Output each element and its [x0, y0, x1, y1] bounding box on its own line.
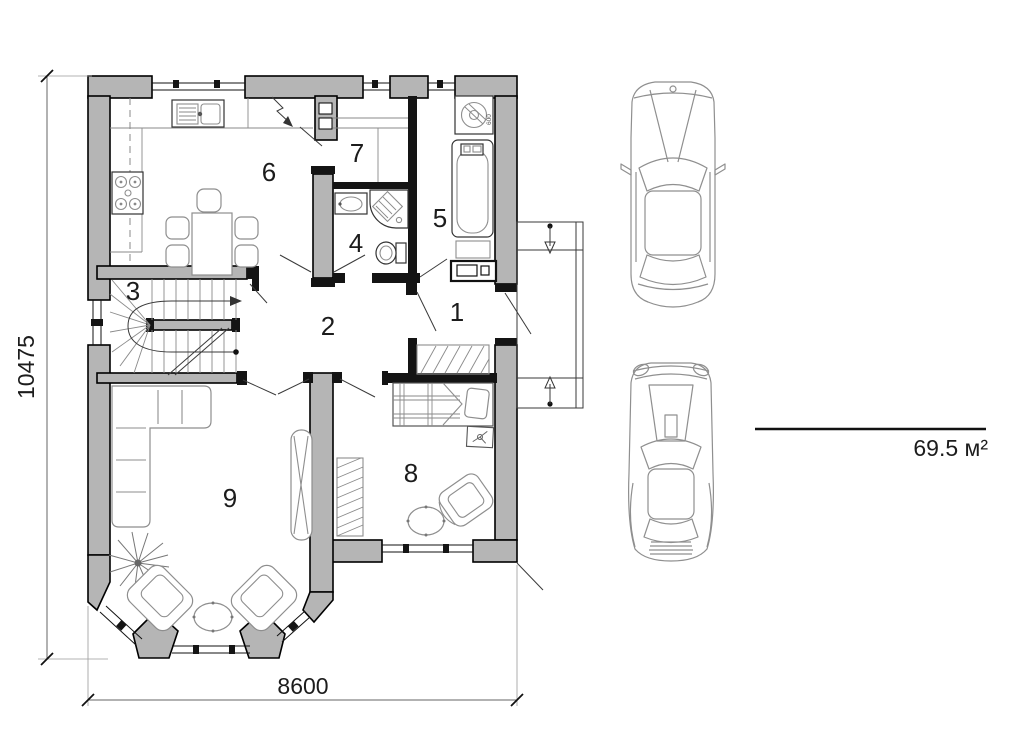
living-room [109, 386, 312, 635]
room-label-4: 4 [349, 228, 363, 258]
chair [235, 217, 258, 239]
toilet [376, 242, 406, 264]
room-label-6: 6 [262, 157, 276, 187]
rug [456, 241, 490, 258]
closet-shelves [333, 118, 408, 182]
floor-plan-canvas: 600 [0, 0, 1024, 739]
room-label-2: 2 [321, 311, 335, 341]
kitchen-sink [172, 100, 224, 127]
vehicles [621, 82, 725, 561]
kitchen [110, 97, 313, 275]
pillow [464, 388, 489, 419]
dining-table [192, 213, 232, 275]
oval-table [407, 506, 446, 537]
window [172, 645, 250, 654]
chair [166, 245, 189, 267]
tall-cabinet [291, 430, 312, 540]
dining-table-set [166, 189, 258, 275]
area-callout: 69.5 м² [755, 429, 988, 461]
room-label-7: 7 [350, 138, 364, 168]
entrance-porch [517, 222, 583, 408]
chair [166, 217, 189, 239]
bathtub [452, 140, 493, 237]
room-label-3: 3 [126, 276, 140, 306]
window [152, 80, 245, 90]
chair [235, 245, 258, 267]
doormat [417, 345, 489, 374]
bathroom [335, 190, 408, 264]
vertical-dimension-label: 10475 [13, 335, 39, 399]
window [91, 300, 103, 345]
room-label-5: 5 [433, 203, 447, 233]
room-label-8: 8 [404, 458, 418, 488]
stove [112, 172, 143, 214]
coffee-table [193, 602, 234, 633]
bay-pier [303, 592, 333, 622]
interior-walls [97, 96, 497, 385]
room-label-9: 9 [223, 483, 237, 513]
chair [197, 189, 221, 212]
horizontal-dimension-label: 8600 [277, 673, 328, 699]
window [363, 80, 390, 90]
utility-room: 600 [451, 96, 496, 281]
window [382, 544, 473, 553]
sedan-top-view-icon [621, 82, 725, 307]
bed [393, 383, 493, 426]
armchair [227, 561, 301, 635]
shower-cabin [370, 190, 408, 228]
bay-pier [88, 555, 110, 610]
bedside-table [466, 426, 493, 447]
shoe-cabinet [451, 261, 496, 281]
entry [417, 345, 489, 374]
floor-plan-page: 600 [0, 0, 1024, 739]
leader-arrow [272, 97, 293, 127]
window [428, 80, 455, 90]
appliance-width-label: 600 [486, 114, 493, 125]
wardrobe [337, 458, 363, 536]
area-label: 69.5 м² [913, 435, 988, 461]
sports-car-top-view-icon [629, 362, 714, 561]
room-label-1: 1 [450, 297, 464, 327]
armchair [123, 561, 197, 635]
washbasin [335, 193, 367, 214]
corner-sofa [112, 386, 211, 527]
